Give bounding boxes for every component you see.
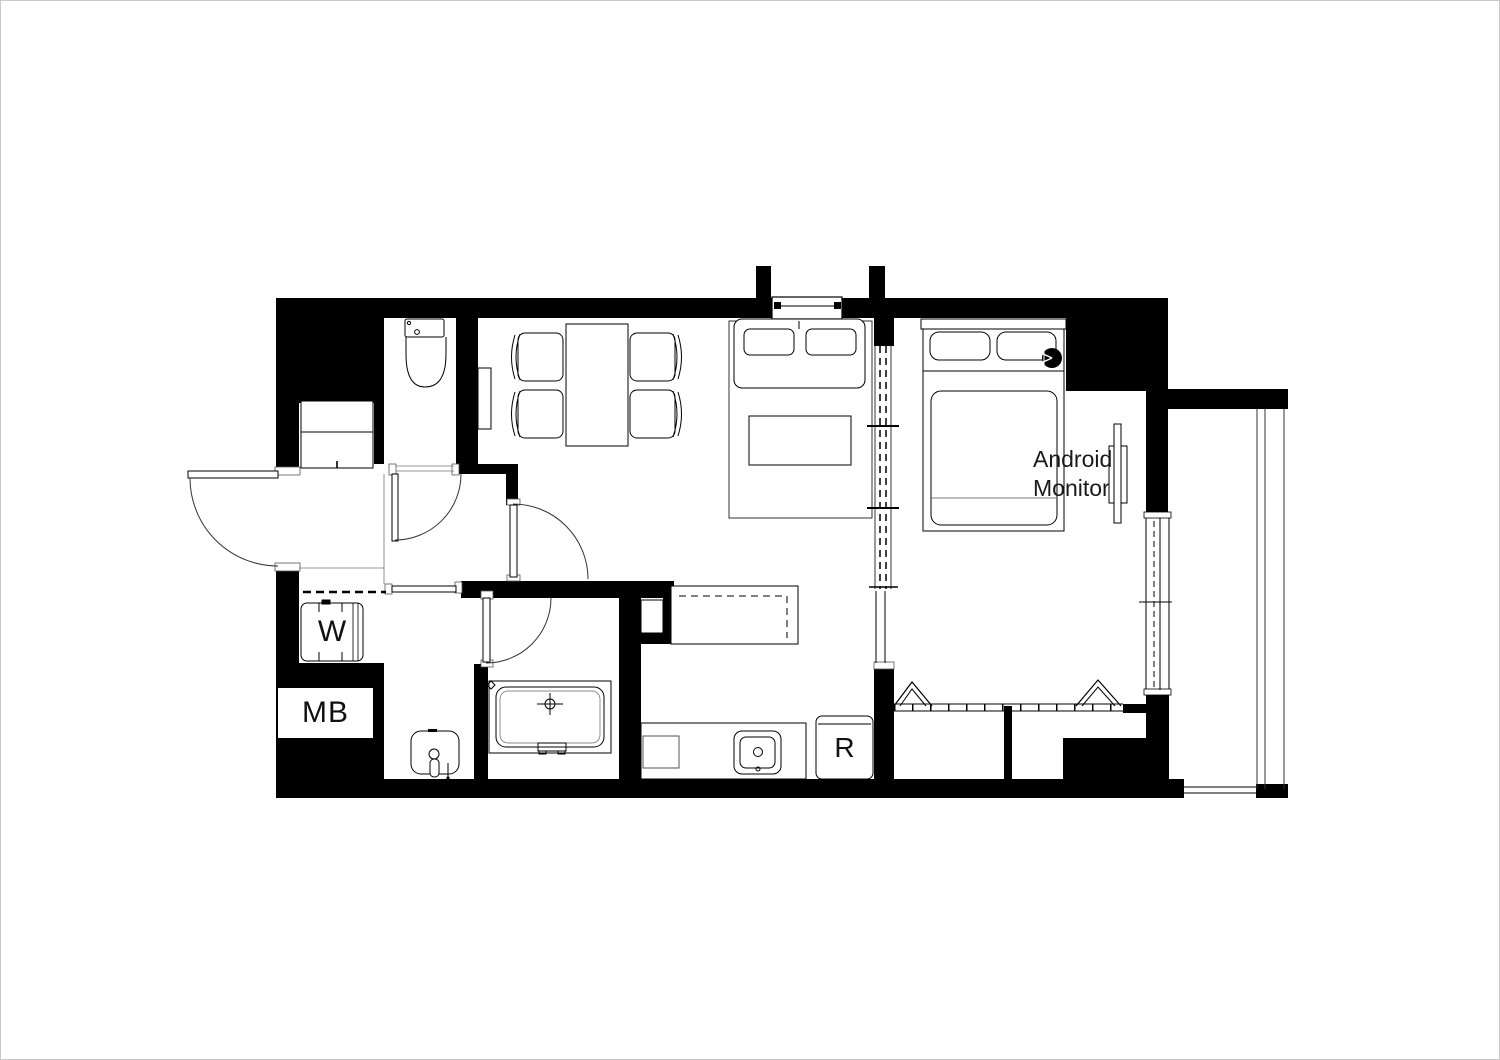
wall-closet-band bbox=[1123, 704, 1148, 713]
wall-pillar-bottom bbox=[641, 633, 671, 644]
refrigerator-label: R bbox=[816, 716, 873, 779]
wall-stub-right bbox=[869, 266, 885, 300]
wall-bedroom-right-upper bbox=[1146, 391, 1168, 514]
washbasin bbox=[411, 729, 459, 780]
living-area bbox=[729, 319, 872, 518]
wall-topleft-mass bbox=[299, 318, 374, 403]
floor-plan: W MB R Android Monitor bbox=[0, 0, 1500, 1060]
wall-toilet-left bbox=[374, 318, 384, 464]
washer-label: W bbox=[301, 603, 363, 661]
wall-top bbox=[276, 298, 1168, 318]
bed-headboard bbox=[921, 319, 1066, 329]
sofa bbox=[734, 319, 865, 388]
wall-bedroom-topright bbox=[1066, 298, 1168, 391]
balcony-sliding-door bbox=[1139, 512, 1172, 695]
kitchen-island bbox=[671, 586, 798, 644]
wall-closet-step bbox=[1063, 738, 1148, 779]
kitchen-shaft bbox=[641, 600, 663, 633]
balcony bbox=[1184, 409, 1284, 793]
wall-partition-top bbox=[874, 318, 894, 346]
android-monitor-label-line1: Android bbox=[1033, 445, 1143, 474]
wall-bath-left bbox=[474, 664, 488, 779]
wall-toilet-right bbox=[456, 318, 478, 471]
closet-door-chevron-right bbox=[1076, 680, 1121, 706]
wall-kitchen-right bbox=[874, 669, 894, 779]
toilet-door bbox=[392, 474, 461, 541]
wall-balcony-bottom-block bbox=[1256, 784, 1288, 798]
dining-set bbox=[512, 324, 682, 446]
wall-balcony-top bbox=[1168, 389, 1288, 409]
bathroom-door bbox=[483, 598, 551, 663]
bedside-fan-icon bbox=[1041, 348, 1062, 368]
threshold-lines bbox=[299, 466, 454, 584]
entry-door bbox=[188, 471, 278, 566]
wall-left-upper bbox=[276, 298, 299, 474]
floor-plan-drawing bbox=[1, 1, 1500, 1060]
closet-divider bbox=[1004, 706, 1012, 779]
android-monitor-label-line2: Monitor bbox=[1033, 474, 1143, 503]
window-top bbox=[772, 297, 842, 319]
android-monitor-label: Android Monitor bbox=[1033, 445, 1143, 505]
dining-table bbox=[566, 324, 628, 446]
wall-bottom bbox=[276, 779, 1184, 798]
coffee-table bbox=[749, 416, 851, 465]
shoe-cabinet bbox=[301, 401, 373, 468]
washroom-sliding-door bbox=[303, 586, 456, 592]
kitchen-counter bbox=[641, 723, 806, 779]
meter-box-label: MB bbox=[278, 688, 373, 738]
wall-bedroom-right-lower bbox=[1146, 693, 1169, 784]
toilet bbox=[405, 319, 446, 387]
closet-door-chevron-left bbox=[894, 682, 932, 706]
wall-bath-right bbox=[619, 598, 641, 779]
wall-niche bbox=[478, 368, 491, 429]
bathtub bbox=[487, 681, 611, 754]
pillow-left bbox=[930, 332, 990, 360]
wall-hall-horizontal bbox=[458, 464, 518, 474]
living-door bbox=[510, 504, 588, 579]
wall-stub-left bbox=[756, 266, 771, 300]
